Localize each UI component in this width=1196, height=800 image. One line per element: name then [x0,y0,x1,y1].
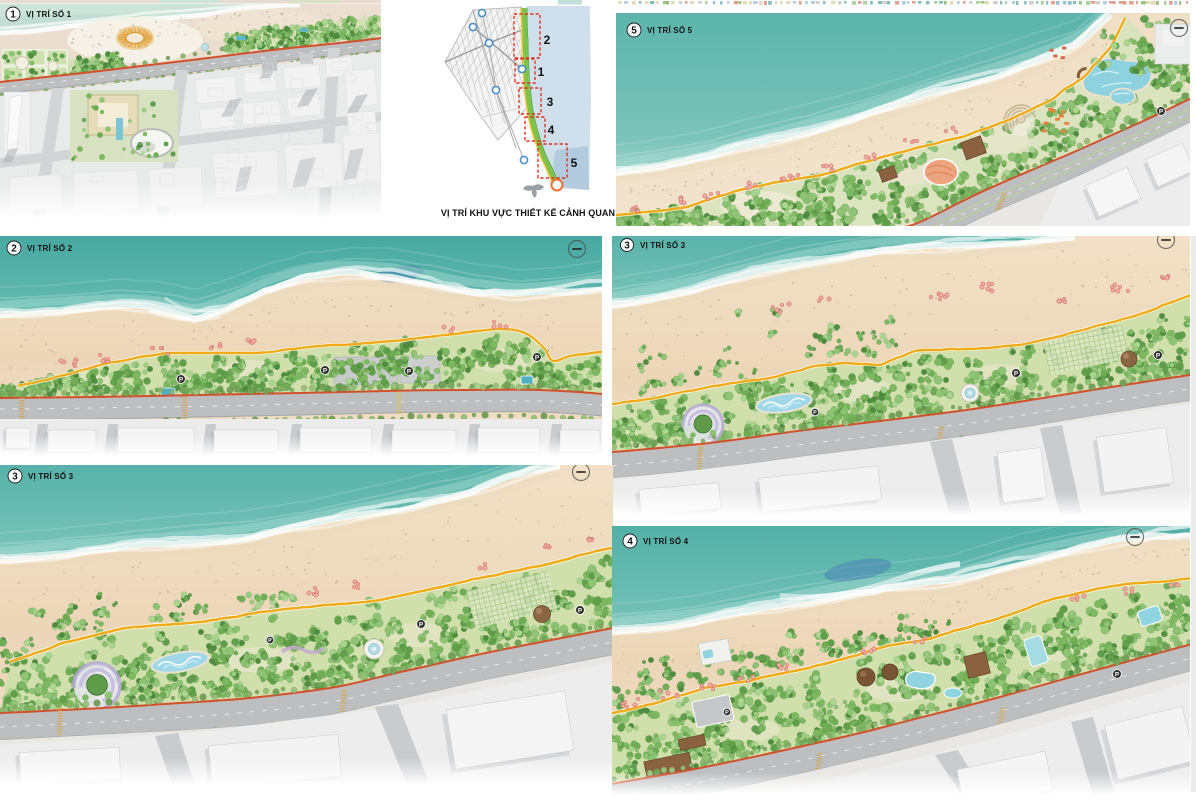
svg-text:VỊ TRÍ SỐ 3: VỊ TRÍ SỐ 3 [28,471,74,481]
svg-text:P: P [1156,352,1161,359]
svg-text:3: 3 [547,95,554,109]
svg-text:1: 1 [10,10,16,21]
svg-text:P: P [419,621,424,628]
svg-text:4: 4 [548,123,555,137]
svg-text:VỊ TRÍ SỐ 2: VỊ TRÍ SỐ 2 [27,243,73,253]
svg-text:P: P [268,638,272,644]
svg-text:P: P [323,367,328,374]
svg-text:P: P [578,607,583,614]
svg-text:VỊ TRÍ SỐ 1: VỊ TRÍ SỐ 1 [26,9,72,19]
svg-text:VỊ TRÍ SỐ 4: VỊ TRÍ SỐ 4 [643,536,689,546]
svg-text:P: P [1115,671,1120,678]
svg-text:P: P [179,376,184,383]
svg-text:P: P [813,410,817,416]
svg-text:1: 1 [538,65,545,79]
svg-text:5: 5 [571,156,578,170]
svg-text:P: P [725,710,729,716]
svg-text:4: 4 [627,537,633,548]
svg-text:P: P [1014,370,1019,377]
svg-text:3: 3 [624,241,630,252]
svg-text:VỊ TRÍ KHU VỰC THIẾT KẾ CẢNH Q: VỊ TRÍ KHU VỰC THIẾT KẾ CẢNH QUAN [441,207,615,218]
svg-text:P: P [1159,108,1164,115]
svg-text:VỊ TRÍ SỐ 5: VỊ TRÍ SỐ 5 [647,25,693,35]
svg-text:P: P [535,354,540,361]
svg-text:P: P [407,368,412,375]
svg-text:5: 5 [631,26,637,37]
svg-text:3: 3 [12,472,18,483]
svg-text:2: 2 [544,33,551,47]
svg-text:VỊ TRÍ SỐ 3: VỊ TRÍ SỐ 3 [640,240,686,250]
svg-text:2: 2 [11,244,17,255]
